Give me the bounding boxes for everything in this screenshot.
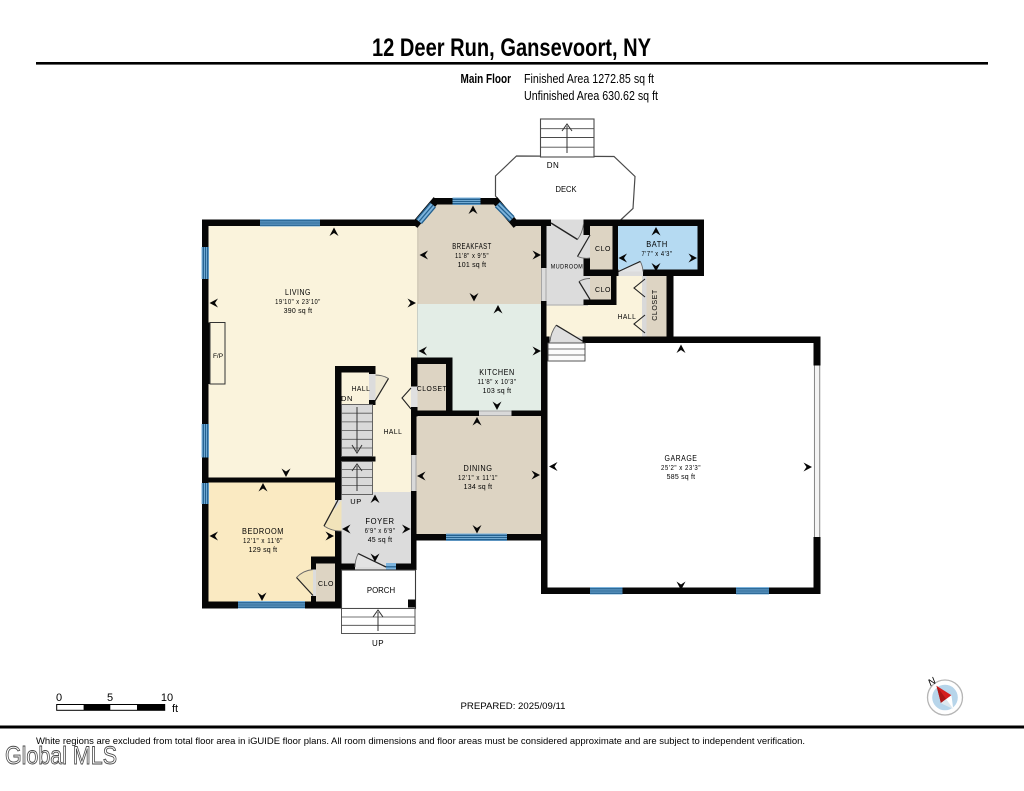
- svg-text:CLOSET: CLOSET: [650, 289, 659, 321]
- svg-text:Global MLS: Global MLS: [5, 742, 117, 770]
- svg-text:BEDROOM: BEDROOM: [242, 527, 284, 536]
- svg-text:12'1" x 11'1": 12'1" x 11'1": [458, 475, 498, 482]
- svg-text:390 sq ft: 390 sq ft: [284, 308, 313, 315]
- svg-text:6'9" x 6'9": 6'9" x 6'9": [365, 528, 396, 535]
- svg-text:Unfinished Area 630.62 sq ft: Unfinished Area 630.62 sq ft: [524, 89, 658, 103]
- svg-text:19'10" x 23'10": 19'10" x 23'10": [275, 299, 321, 306]
- svg-text:DINING: DINING: [464, 464, 493, 473]
- svg-text:F/P: F/P: [213, 353, 223, 360]
- svg-text:12 Deer Run, Gansevoort, NY: 12 Deer Run, Gansevoort, NY: [372, 34, 651, 62]
- svg-text:CLOSET: CLOSET: [417, 384, 448, 393]
- svg-text:GARAGE: GARAGE: [665, 454, 698, 463]
- svg-text:DN: DN: [547, 161, 560, 170]
- svg-text:Finished Area 1272.85 sq ft: Finished Area 1272.85 sq ft: [524, 72, 654, 86]
- svg-text:CLO: CLO: [595, 244, 611, 253]
- svg-text:134 sq ft: 134 sq ft: [464, 484, 493, 491]
- svg-text:HALL: HALL: [618, 312, 637, 321]
- svg-text:11'8" x 9'5": 11'8" x 9'5": [455, 253, 489, 260]
- svg-text:Main Floor: Main Floor: [461, 72, 512, 86]
- svg-text:CLO: CLO: [595, 285, 611, 294]
- svg-text:HALL: HALL: [384, 427, 403, 436]
- svg-text:11'8" x 10'3": 11'8" x 10'3": [478, 379, 517, 386]
- svg-text:DN: DN: [341, 394, 353, 403]
- svg-text:103 sq ft: 103 sq ft: [483, 388, 512, 395]
- svg-text:BATH: BATH: [646, 240, 668, 249]
- svg-text:UP: UP: [350, 497, 362, 506]
- svg-text:DECK: DECK: [556, 185, 578, 194]
- svg-text:129 sq ft: 129 sq ft: [249, 547, 278, 554]
- svg-text:BREAKFAST: BREAKFAST: [452, 242, 492, 251]
- svg-text:KITCHEN: KITCHEN: [479, 368, 515, 377]
- svg-text:FOYER: FOYER: [365, 517, 394, 526]
- svg-text:PORCH: PORCH: [367, 586, 395, 595]
- svg-text:HALL: HALL: [352, 384, 371, 393]
- svg-text:12'1" x 11'6": 12'1" x 11'6": [243, 538, 283, 545]
- svg-text:White regions are excluded fro: White regions are excluded from total fl…: [36, 736, 805, 746]
- svg-text:CLO: CLO: [318, 579, 334, 588]
- svg-text:25'2" x 23'3": 25'2" x 23'3": [661, 465, 701, 472]
- svg-text:0: 0: [56, 692, 62, 704]
- svg-text:UP: UP: [372, 639, 384, 648]
- svg-text:101 sq ft: 101 sq ft: [458, 262, 487, 269]
- svg-text:PREPARED: 2025/09/11: PREPARED: 2025/09/11: [461, 701, 566, 711]
- svg-text:ft: ft: [172, 703, 178, 715]
- svg-text:5: 5: [107, 692, 113, 704]
- svg-text:LIVING: LIVING: [285, 288, 311, 297]
- svg-text:45 sq ft: 45 sq ft: [368, 537, 393, 544]
- svg-text:585 sq ft: 585 sq ft: [667, 474, 696, 481]
- svg-text:MUDROOM: MUDROOM: [551, 264, 584, 271]
- svg-text:7'7" x 4'3": 7'7" x 4'3": [642, 251, 673, 258]
